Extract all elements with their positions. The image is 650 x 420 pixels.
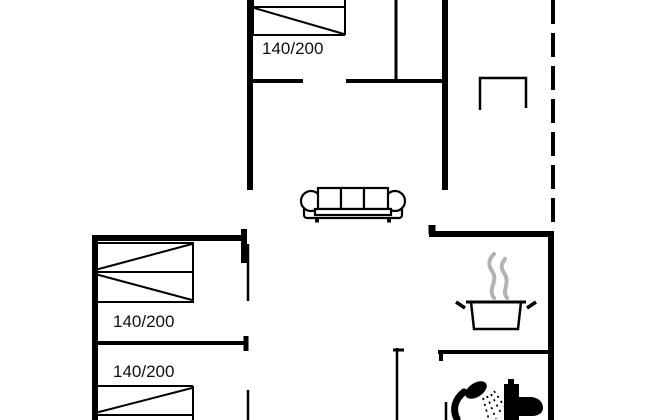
- bed-top-size-label: 140/200: [262, 39, 323, 58]
- bed-bottom-left-icon: [95, 386, 193, 420]
- floor-plan: 140/200 140/200 140/200: [0, 0, 650, 420]
- bed-top-icon: [253, 0, 345, 35]
- toilet-icon: [504, 379, 543, 420]
- shower-icon: [455, 378, 507, 420]
- bed-bottom-left-size-label: 140/200: [113, 362, 174, 381]
- steam-icon: [489, 254, 507, 298]
- floor-plan-drawing: 140/200 140/200 140/200: [0, 0, 650, 420]
- bed-middle-left-icon: [95, 243, 193, 302]
- bed-middle-left-size-label: 140/200: [113, 312, 174, 331]
- cooking-pot-icon: [456, 302, 536, 329]
- terrace-table-icon: [480, 78, 526, 110]
- sofa-icon: [301, 188, 405, 223]
